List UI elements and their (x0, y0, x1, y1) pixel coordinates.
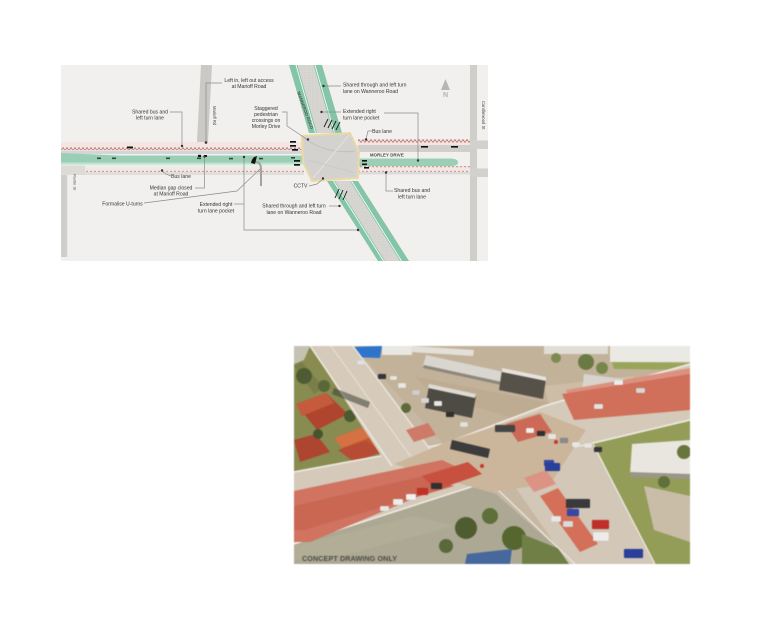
svg-text:left turn lane: left turn lane (136, 116, 164, 122)
svg-text:Candlewood St: Candlewood St (481, 101, 486, 130)
svg-text:at Marioff Road: at Marioff Road (232, 84, 267, 90)
svg-text:Shared through and left turn: Shared through and left turn (343, 83, 407, 89)
svg-text:MORLEY DRIVE: MORLEY DRIVE (370, 153, 404, 158)
svg-text:Morley Drive: Morley Drive (252, 124, 281, 130)
svg-text:Rustle St: Rustle St (73, 174, 78, 191)
svg-text:Shared through and left turn: Shared through and left turn (262, 204, 326, 210)
svg-text:Bus lane: Bus lane (372, 129, 392, 135)
svg-text:turn lane pocket: turn lane pocket (343, 116, 380, 122)
svg-text:Extended right: Extended right (343, 109, 376, 115)
svg-text:lane on Wanneroo Road: lane on Wanneroo Road (343, 89, 398, 95)
svg-text:CCTV: CCTV (294, 184, 308, 190)
svg-text:Formalise U-turns: Formalise U-turns (102, 202, 143, 208)
svg-text:left turn lane: left turn lane (398, 195, 426, 201)
svg-text:lane on Wanneroo Road: lane on Wanneroo Road (266, 210, 321, 216)
svg-text:Bus lane: Bus lane (171, 174, 191, 180)
svg-text:at Marioff Road: at Marioff Road (154, 192, 189, 198)
svg-text:Shared bus and: Shared bus and (394, 188, 430, 194)
svg-text:Marioff Rd: Marioff Rd (212, 106, 217, 126)
svg-text:CONCEPT DRAWING ONLY: CONCEPT DRAWING ONLY (302, 554, 397, 563)
svg-text:Extended right: Extended right (200, 202, 233, 208)
svg-text:N: N (443, 92, 448, 99)
svg-text:turn lane pocket: turn lane pocket (198, 209, 235, 215)
